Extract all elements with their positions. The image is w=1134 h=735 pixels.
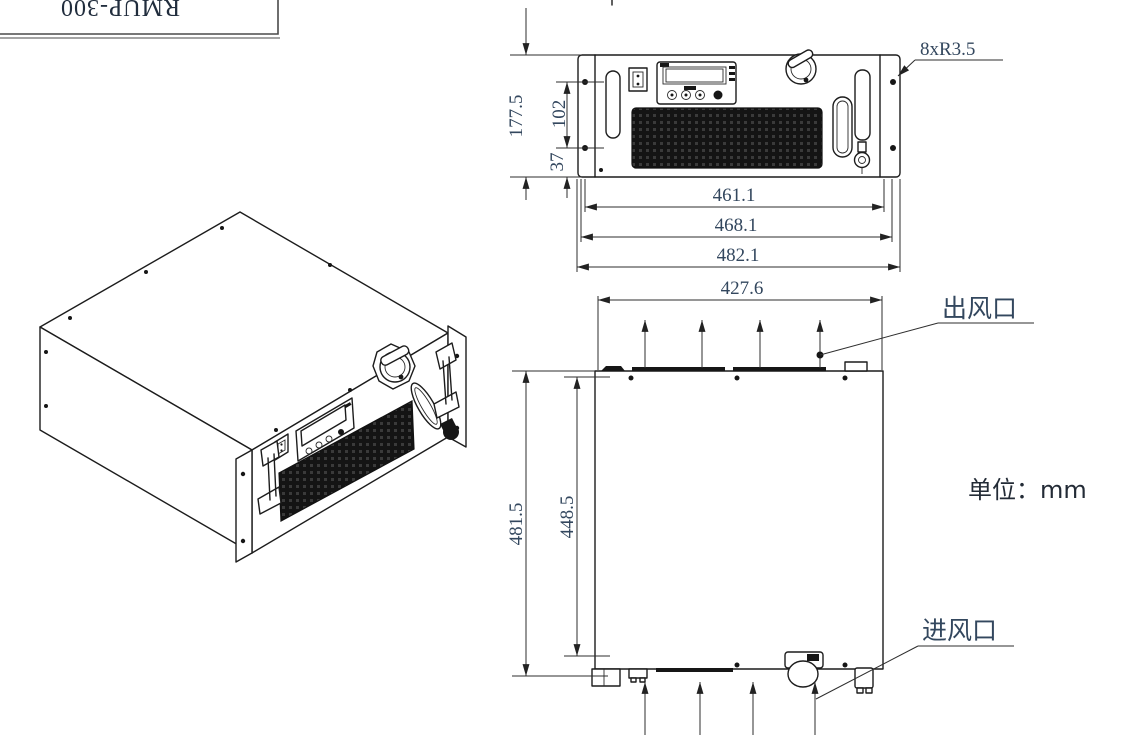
dim-width-mid-text: 468.1: [715, 215, 758, 236]
air-inlet-arrows: [645, 682, 815, 735]
dim-bottom-text: 37: [547, 153, 568, 172]
front-key-switch: [786, 49, 816, 84]
hole-callout: 8xR3.5: [898, 39, 1003, 76]
dim-width-outer-text: 482.1: [717, 245, 760, 266]
engineering-drawing-page: RMUP-300: [0, 0, 1134, 735]
model-label: RMUP-300: [60, 0, 180, 20]
dim-top-width-text: 427.6: [721, 278, 764, 299]
units-note: 单位：mm: [968, 476, 1087, 504]
dim-depth-outer-text: 481.5: [506, 503, 527, 546]
front-view: 8xR3.5 177.5 102 37 461.1: [506, 8, 1003, 272]
dim-depth-inner-text: 448.5: [557, 496, 578, 539]
iso-left-ear: [236, 450, 252, 562]
air-outlet-callout: 出风口: [817, 294, 1035, 359]
dim-width-inner-text: 461.1: [713, 185, 756, 206]
air-outlet-arrows: [645, 320, 820, 368]
top-view-outline: [595, 371, 883, 669]
top-dim-width: 427.6: [598, 278, 882, 370]
title-block: RMUP-300: [0, 0, 280, 38]
dim-panel-text: 102: [549, 100, 570, 129]
drawing-canvas: RMUP-300: [0, 0, 1134, 735]
mounting-hole: [890, 79, 896, 85]
hole-note-text: 8xR3.5: [920, 39, 975, 60]
air-outlet-label: 出风口: [942, 294, 1017, 323]
air-inlet-label: 进风口: [922, 616, 997, 645]
isometric-view: [40, 212, 466, 562]
dim-height-text: 177.5: [506, 95, 527, 138]
top-view: 427.6 出风口: [506, 278, 1034, 735]
front-dims-width: 461.1 468.1 482.1: [577, 179, 900, 272]
front-air-grille: [632, 108, 822, 168]
